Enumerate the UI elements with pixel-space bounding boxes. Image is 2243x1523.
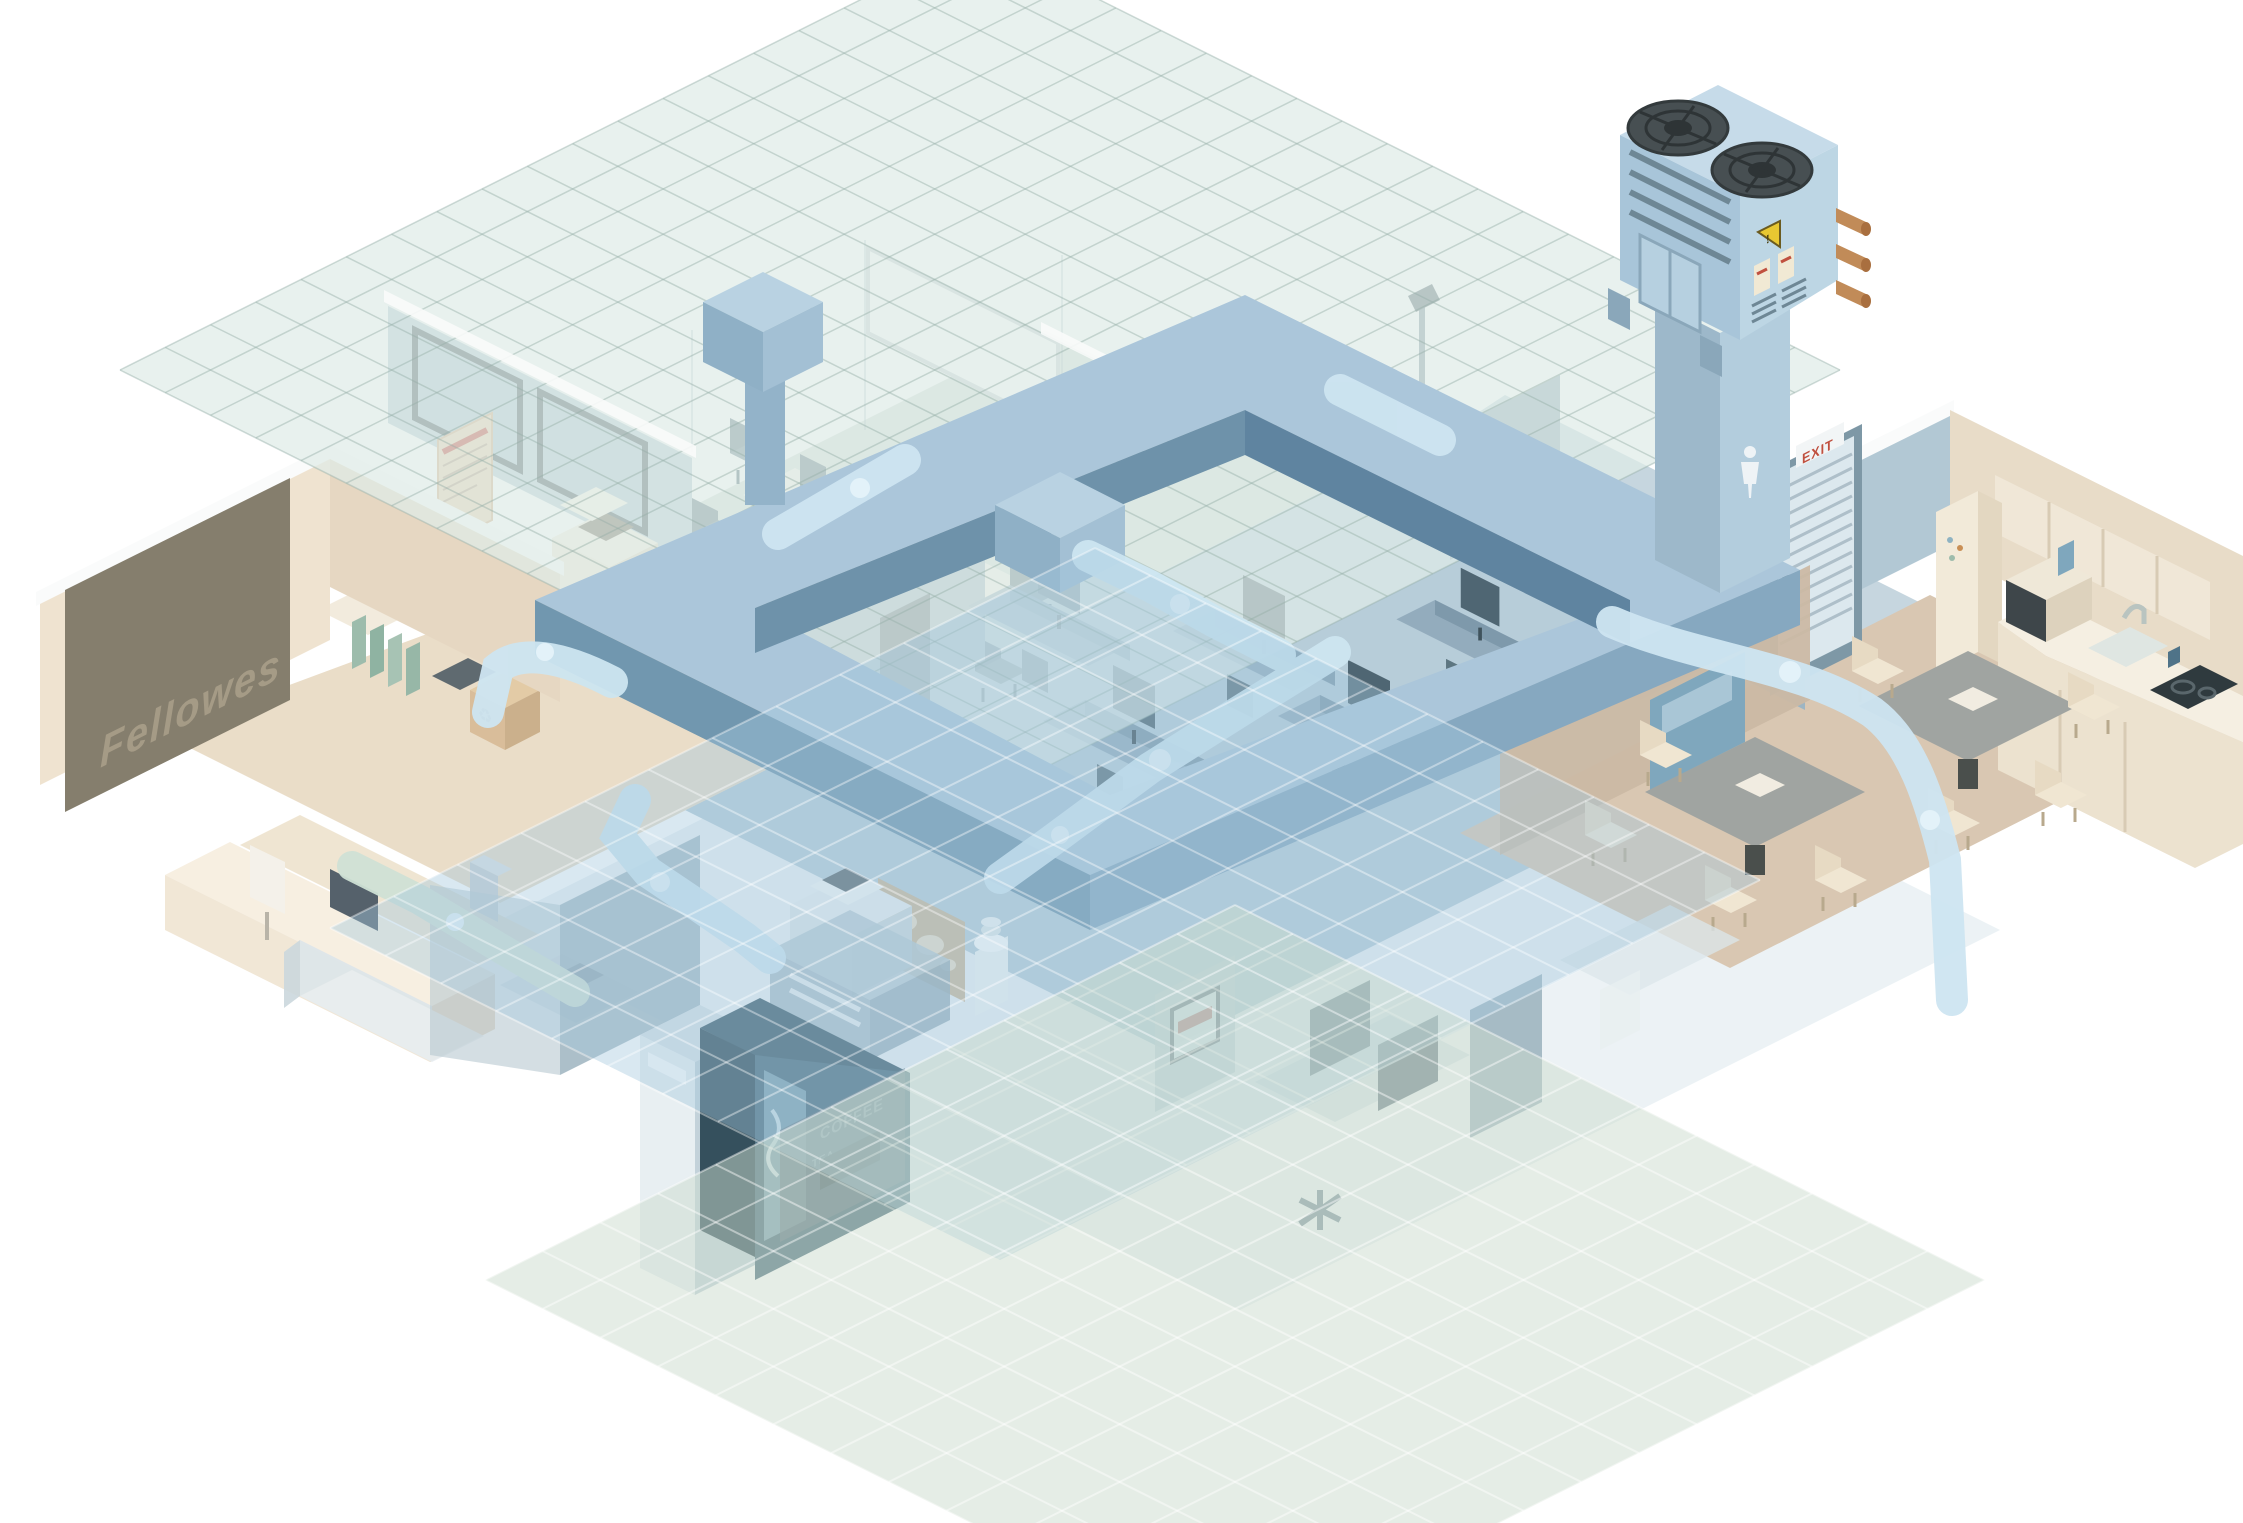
isometric-office-illustration: ♻ ♻: [0, 0, 2243, 1523]
hvac-shaft: [1655, 298, 1790, 593]
hvac-fan: [1628, 101, 1728, 155]
hvac-layer: !: [0, 0, 2243, 1523]
svg-text:!: !: [1766, 231, 1771, 247]
hvac-refrigerant-pipes: [1836, 208, 1871, 308]
airflow-plume: [488, 657, 612, 712]
hvac-fan: [1712, 143, 1812, 197]
